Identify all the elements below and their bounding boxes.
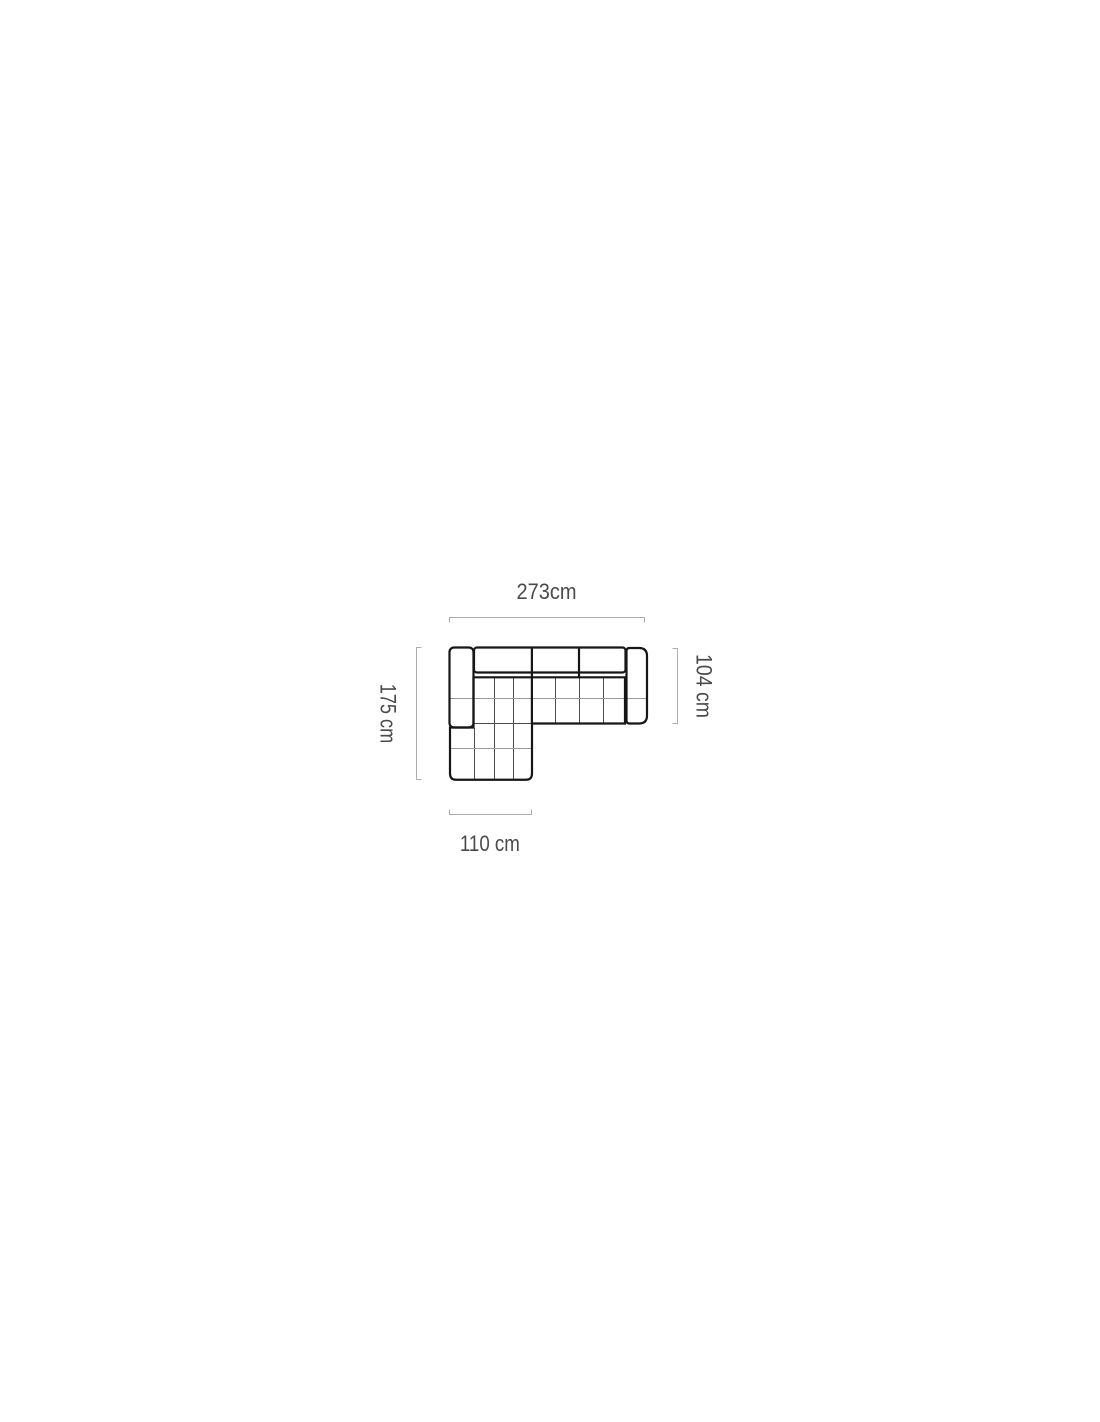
svg-text:104 cm: 104 cm: [692, 654, 717, 718]
svg-text:110 cm: 110 cm: [460, 831, 520, 856]
svg-text:175 cm: 175 cm: [375, 684, 400, 744]
svg-text:273cm: 273cm: [517, 579, 577, 604]
